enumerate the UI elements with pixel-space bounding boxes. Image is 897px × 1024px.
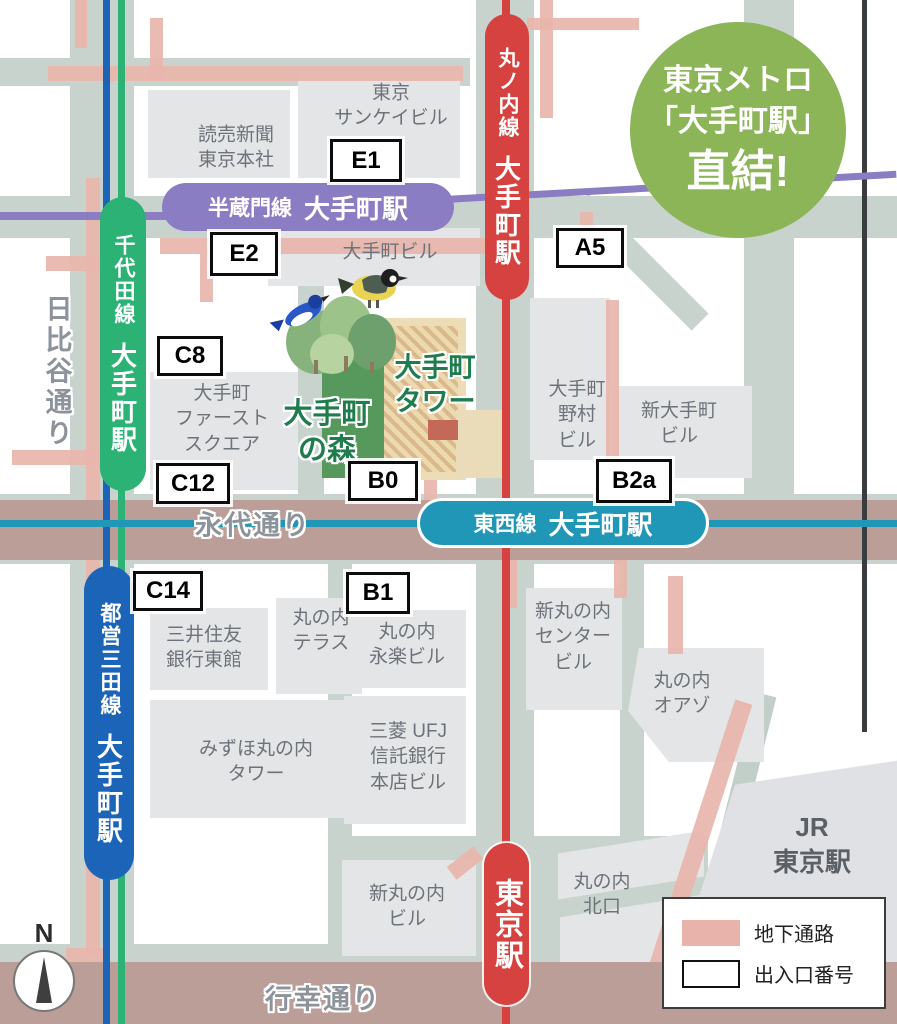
badge-line1: 東京メトロ xyxy=(663,61,813,102)
jr-rail-line xyxy=(862,0,867,732)
station-pill-mita: 都営三田線 大手町駅 xyxy=(84,566,134,880)
exit-box-e1: E1 xyxy=(330,139,402,182)
station-name: 大手町駅 xyxy=(91,733,128,845)
legend-row-passage: 地下通路 xyxy=(682,918,866,947)
line-name: 半蔵門線 xyxy=(208,192,292,222)
station-name: 東京駅 xyxy=(486,878,528,971)
compass-n-label: N xyxy=(12,920,76,946)
building-label-shinmaru-center: 新丸の内センタービル xyxy=(535,599,611,675)
legend-row-exit: 出入口番号 xyxy=(682,959,866,988)
station-pill-marunouchi: 丸ノ内線 大手町駅 xyxy=(485,14,529,300)
underground-passage-segment xyxy=(48,66,463,81)
exit-box-b0: B0 xyxy=(348,461,418,501)
legend-passage-label: 地下通路 xyxy=(754,918,834,947)
station-name: 大手町駅 xyxy=(105,342,142,454)
station-pill-tozai: 東西線 大手町駅 xyxy=(420,501,706,545)
underground-passage-segment xyxy=(75,0,87,48)
building-label-sankei: 東京サンケイビル xyxy=(334,81,448,132)
line-name: 丸ノ内線 xyxy=(492,47,522,139)
exit-box-a5: A5 xyxy=(556,228,624,268)
exit-box-e2: E2 xyxy=(210,232,278,276)
street-label-gyoko: 行幸通り xyxy=(265,978,381,1017)
station-pill-hanzomon: 半蔵門線 大手町駅 xyxy=(162,183,454,231)
building-label-first-square: 大手町ファーストスクエア xyxy=(175,381,269,457)
street-label-hibiya: 日比谷通り xyxy=(38,295,77,450)
underground-passage-segment xyxy=(12,450,102,465)
station-pill-tokyo: 東京駅 xyxy=(484,843,529,1005)
exit-box-c12: C12 xyxy=(156,463,230,504)
otemachi-tower-annex xyxy=(456,410,504,478)
map-legend: 地下通路 出入口番号 xyxy=(662,897,886,1009)
station-name: 大手町駅 xyxy=(548,505,652,542)
underground-passage-segment xyxy=(86,178,100,523)
line-name: 千代田線 xyxy=(108,234,138,326)
underground-passage-segment xyxy=(527,18,639,30)
line-name: 都営三田線 xyxy=(94,602,124,717)
building-label-smbc-east: 三井住友銀行東館 xyxy=(166,623,242,674)
station-name: 大手町駅 xyxy=(489,155,526,267)
exit-box-swatch xyxy=(682,960,740,988)
badge-line2: 「大手町駅」 xyxy=(648,102,828,143)
badge-line3: 直結! xyxy=(687,146,790,199)
building-label-jr-tokyo: JR東京駅 xyxy=(773,810,851,880)
landmark-label-otemachi-forest: 大手町 の森 xyxy=(283,396,370,469)
building-label-yomiuri: 読売新聞東京本社 xyxy=(198,123,274,174)
building-label-kitaguchi: 丸の内北口 xyxy=(573,870,630,921)
underground-passage-segment xyxy=(150,18,163,80)
direct-access-badge: 東京メトロ 「大手町駅」 直結! xyxy=(630,22,846,238)
compass: N xyxy=(12,920,76,1020)
building-label-shin-otemachi: 新大手町ビル xyxy=(641,399,717,450)
building-label-mizuho: みずほ丸の内タワー xyxy=(199,737,313,788)
exit-box-c14: C14 xyxy=(133,571,203,611)
exit-box-c8: C8 xyxy=(157,336,223,376)
otemachi-station-map: 半蔵門線 大手町駅 千代田線 大手町駅 丸ノ内線 大手町駅 東西線 大手町駅 都… xyxy=(0,0,897,1024)
legend-exit-label: 出入口番号 xyxy=(754,959,854,988)
station-pill-chiyoda: 千代田線 大手町駅 xyxy=(100,197,146,491)
passage-color-swatch xyxy=(682,920,740,946)
building-label-nomura: 大手町野村ビル xyxy=(548,377,605,453)
tower-detail-patch xyxy=(428,420,458,440)
landmark-label-otemachi-tower: 大手町 タワー xyxy=(395,351,476,419)
line-name: 東西線 xyxy=(473,508,536,538)
building-label-mufg: 三菱 UFJ信託銀行本店ビル xyxy=(369,719,447,795)
building-label-oazo: 丸の内オアゾ xyxy=(653,669,710,720)
station-name: 大手町駅 xyxy=(304,189,408,226)
exit-box-b2a: B2a xyxy=(596,459,672,503)
compass-needle-icon xyxy=(36,957,52,1003)
building-label-otemachi-bldg: 大手町ビル xyxy=(342,239,437,264)
compass-dial xyxy=(13,950,75,1012)
exit-box-b1: B1 xyxy=(346,572,410,614)
street-label-eitai: 永代通り xyxy=(195,504,311,543)
underground-passage-segment xyxy=(46,256,102,271)
building-label-terrace: 丸の内テラス xyxy=(292,606,349,657)
underground-passage-segment xyxy=(614,556,627,598)
building-label-eiraku: 丸の内永楽ビル xyxy=(369,620,445,671)
underground-passage-segment xyxy=(668,576,683,654)
building-label-shinmaru: 新丸の内ビル xyxy=(369,882,445,933)
